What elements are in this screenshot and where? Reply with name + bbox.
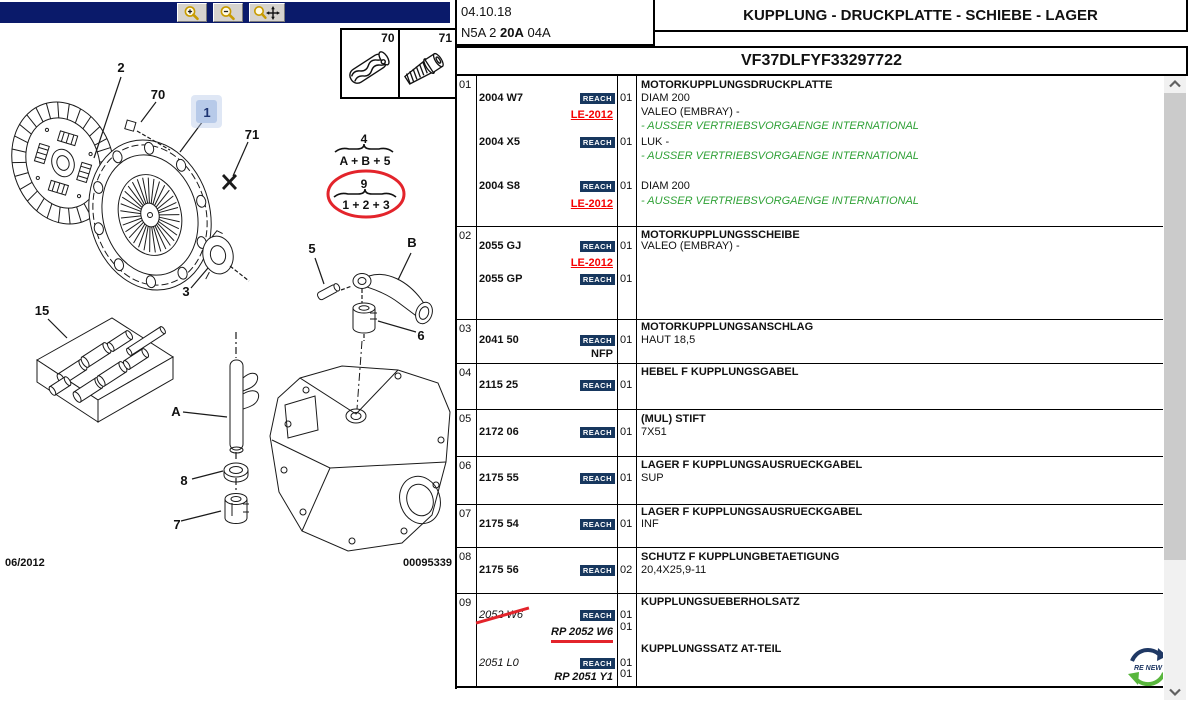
quantity-value: 01 (620, 622, 632, 633)
zoom-out-button[interactable] (213, 3, 243, 22)
quantity-value: 01 (620, 427, 632, 438)
ref-cell: 06 (457, 457, 477, 504)
table-row: 082175 56REACH02SCHUTZ F KUPPLUNGBETAETI… (457, 548, 1163, 594)
quantity-value: 01 (620, 241, 632, 252)
reach-badge[interactable]: REACH (580, 181, 615, 192)
part-number: 2004 S8 (479, 181, 520, 192)
part-cell: 2115 25REACH (477, 364, 618, 409)
description-line: VALEO (EMBRAY) - (641, 241, 740, 252)
parts-diagram: 2707135B615A8714A + B + 591 + 2 + 3 (0, 0, 457, 700)
hardware-inset: 70 71 (340, 28, 457, 99)
pin-icon (342, 38, 398, 94)
table-row: 022055 GJREACHLE-20122055 GPREACH0101MOT… (457, 227, 1163, 320)
description-cell: MOTORKUPPLUNGSANSCHLAGHAUT 18,5 (637, 320, 1163, 363)
table-row: 042115 25REACH01HEBEL F KUPPLUNGSGABEL (457, 364, 1163, 410)
description-header: MOTORKUPPLUNGSANSCHLAG (641, 322, 813, 333)
header-code-suffix: 04A (524, 25, 551, 40)
table-row: 032041 50REACHNFP01MOTORKUPPLUNGSANSCHLA… (457, 320, 1163, 364)
description-header: MOTORKUPPLUNGSDRUCKPLATTE (641, 80, 832, 91)
reach-badge[interactable]: REACH (580, 93, 615, 104)
quantity-value: 01 (620, 669, 632, 680)
part-number[interactable]: LE-2012 (571, 110, 613, 121)
screw-71[interactable] (223, 175, 236, 189)
callout-1-selected[interactable]: 1 (203, 105, 210, 120)
quantity-value: 02 (620, 565, 632, 576)
description-cell: HEBEL F KUPPLUNGSGABEL (637, 364, 1163, 409)
row-ref: 09 (459, 597, 471, 609)
sleeve-kit-box[interactable] (37, 318, 173, 422)
quantity-value: 01 (620, 181, 632, 192)
part-number: 2041 50 (479, 335, 519, 346)
formula-2-number: 9 (361, 177, 368, 191)
release-lever[interactable] (353, 274, 435, 327)
zoom-in-button[interactable] (177, 3, 207, 22)
vin-number: VF37DLFYF33297722 (457, 46, 1188, 76)
description-line: VALEO (EMBRAY) - (641, 107, 740, 118)
reach-badge[interactable]: REACH (580, 610, 615, 621)
magnifier-minus-icon (219, 5, 237, 21)
row-ref: 05 (459, 413, 471, 425)
header-code-prefix: N5A 2 (461, 25, 500, 40)
part-number: 2172 06 (479, 427, 519, 438)
diagram-number: 00095339 (330, 557, 452, 569)
inset-cell-71: 71 (400, 30, 456, 97)
magnifier-plus-icon (183, 5, 201, 21)
header-code-bold: 20A (500, 25, 524, 40)
part-number: RP 2052 W6 (551, 627, 613, 643)
part-cell: 2052 W6REACHRP 2052 W62051 L0REACHRP 205… (477, 594, 618, 688)
row-ref: 08 (459, 551, 471, 563)
reach-badge[interactable]: REACH (580, 241, 615, 252)
ref-cell: 04 (457, 364, 477, 409)
part-cell: 2172 06REACH (477, 410, 618, 456)
description-cell: KUPPLUNGSUEBERHOLSATZKUPPLUNGSSATZ AT-TE… (637, 594, 1163, 688)
ref-cell: 08 (457, 548, 477, 593)
callout-8[interactable]: 8 (180, 473, 187, 488)
table-row: 052172 06REACH01(MUL) STIFT7X51 (457, 410, 1163, 457)
description-header: SCHUTZ F KUPPLUNGBETAETIGUNG (641, 552, 839, 563)
quantity-value: 01 (620, 610, 632, 621)
part-cell: 2004 W7REACHLE-20122004 X5REACH2004 S8RE… (477, 76, 618, 226)
quantity-value: 01 (620, 473, 632, 484)
scroll-down-arrow[interactable] (1164, 683, 1186, 700)
description-line: - AUSSER VERTRIEBSVORGAENGE INTERNATIONA… (641, 121, 919, 132)
quantity-value: 01 (620, 335, 632, 346)
part-number: 2004 X5 (479, 137, 520, 148)
gearbox-housing (270, 341, 450, 551)
description-header: (MUL) STIFT (641, 414, 706, 425)
recycle-arrows-icon: RE NEW (1125, 644, 1163, 688)
header-info: 04.10.18 N5A 2 20A 04A (457, 0, 655, 46)
scroll-up-arrow[interactable] (1164, 76, 1186, 93)
callout-6[interactable]: 6 (417, 328, 424, 343)
table-row: 072175 54REACH01LAGER F KUPPLUNGSAUSRUEC… (457, 505, 1163, 548)
description-cell: LAGER F KUPPLUNGSAUSRUECKGABELSUP (637, 457, 1163, 504)
reach-badge[interactable]: REACH (580, 565, 615, 576)
part-number: 2055 GJ (479, 241, 521, 252)
row-ref: 07 (459, 508, 471, 520)
parts-table: RE NEW 012004 W7REACHLE-20122004 X5REACH… (457, 76, 1163, 688)
diagram-date: 06/2012 (5, 557, 45, 569)
pin-70[interactable] (125, 120, 136, 131)
qty-cell: 01010101 (618, 594, 637, 688)
description-line: - AUSSER VERTRIEBSVORGAENGE INTERNATIONA… (641, 151, 919, 162)
formula-1-number: 4 (361, 132, 368, 146)
part-cell: 2055 GJREACHLE-20122055 GPREACH (477, 227, 618, 319)
row-ref: 02 (459, 230, 471, 242)
page-title: KUPPLUNG - DRUCKPLATTE - SCHIEBE - LAGER (655, 0, 1188, 32)
reach-badge[interactable]: REACH (580, 427, 615, 438)
qty-cell: 01 (618, 320, 637, 363)
description-line: 7X51 (641, 427, 667, 438)
bolt-icon (400, 38, 456, 94)
diagram-toolbar (0, 2, 450, 23)
diagram-pane: 2707135B615A8714A + B + 591 + 2 + 3 (0, 0, 457, 700)
part-cell: 2175 54REACH (477, 505, 618, 547)
part-number[interactable]: LE-2012 (571, 199, 613, 210)
inset-cell-70: 70 (342, 30, 400, 97)
release-shaft[interactable] (230, 360, 259, 453)
qty-cell: 01 (618, 457, 637, 504)
quantity-value: 01 (620, 93, 632, 104)
row-ref: 04 (459, 367, 471, 379)
part-number: 2004 W7 (479, 93, 523, 104)
reach-badge[interactable]: REACH (580, 335, 615, 346)
ref-cell: 02 (457, 227, 477, 319)
header-code: N5A 2 20A 04A (461, 25, 551, 40)
reach-badge[interactable]: REACH (580, 380, 615, 391)
chevron-down-icon (1164, 683, 1186, 700)
description-line: HAUT 18,5 (641, 335, 695, 346)
qty-cell: 0101 (618, 227, 637, 319)
description-line: LUK - (641, 137, 669, 148)
reach-badge[interactable]: REACH (580, 658, 615, 669)
part-cell: 2175 56REACH (477, 548, 618, 593)
magnifier-move-icon (253, 5, 281, 21)
callout-7[interactable]: 7 (173, 517, 180, 532)
row-ref: 06 (459, 460, 471, 472)
callout-15[interactable]: 15 (35, 303, 49, 318)
qty-cell: 010101 (618, 76, 637, 226)
description-cell: SCHUTZ F KUPPLUNGBETAETIGUNG20,4X25,9-11 (637, 548, 1163, 593)
description-line: INF (641, 519, 659, 530)
qty-cell: 01 (618, 505, 637, 547)
callout-71[interactable]: 71 (245, 127, 259, 142)
description-line: DIAM 200 (641, 181, 690, 192)
chevron-up-icon (1164, 76, 1186, 93)
callout-3[interactable]: 3 (182, 284, 189, 299)
bushing-7[interactable] (225, 494, 249, 524)
table-row: 012004 W7REACHLE-20122004 X5REACH2004 S8… (457, 76, 1163, 227)
callout-2[interactable]: 2 (117, 60, 124, 75)
ref-cell: 07 (457, 505, 477, 547)
zoom-pan-button[interactable] (249, 3, 285, 22)
part-cell: 2175 55REACH (477, 457, 618, 504)
row-ref: 03 (459, 323, 471, 335)
part-number: 2055 GP (479, 274, 522, 285)
scrollbar-thumb[interactable] (1164, 93, 1186, 560)
header-date: 04.10.18 (461, 4, 512, 19)
description-cell: MOTORKUPPLUNGSSCHEIBEVALEO (EMBRAY) - (637, 227, 1163, 319)
qty-cell: 01 (618, 364, 637, 409)
part-number: 2175 54 (479, 519, 519, 530)
callout-70[interactable]: 70 (151, 87, 165, 102)
part-number: 2115 25 (479, 380, 518, 391)
part-number: NFP (591, 349, 613, 360)
formula-1-expression: A + B + 5 (340, 154, 391, 168)
description-header: KUPPLUNGSUEBERHOLSATZ (641, 597, 800, 608)
part-number[interactable]: LE-2012 (571, 258, 613, 269)
description-header: KUPPLUNGSSATZ AT-TEIL (641, 644, 781, 655)
quantity-value: 01 (620, 519, 632, 530)
description-cell: LAGER F KUPPLUNGSAUSRUECKGABELINF (637, 505, 1163, 547)
description-line: - AUSSER VERTRIEBSVORGAENGE INTERNATIONA… (641, 196, 919, 207)
description-cell: MOTORKUPPLUNGSDRUCKPLATTEDIAM 200VALEO (… (637, 76, 1163, 226)
part-number: 2052 W6 (479, 610, 523, 621)
description-line: 20,4X25,9-11 (641, 565, 706, 576)
description-header: LAGER F KUPPLUNGSAUSRUECKGABEL (641, 460, 862, 471)
quantity-value: 01 (620, 380, 632, 391)
qty-cell: 02 (618, 548, 637, 593)
ref-cell: 09 (457, 594, 477, 688)
formula-2-expression: 1 + 2 + 3 (342, 198, 390, 212)
pivot-6[interactable] (353, 303, 377, 333)
description-header: HEBEL F KUPPLUNGSGABEL (641, 367, 798, 378)
quantity-value: 01 (620, 137, 632, 148)
qty-cell: 01 (618, 410, 637, 456)
part-cell: 2041 50REACHNFP (477, 320, 618, 363)
description-header: LAGER F KUPPLUNGSAUSRUECKGABEL (641, 507, 862, 518)
renew-logo: RE NEW (1125, 644, 1163, 688)
table-row: 062175 55REACH01LAGER F KUPPLUNGSAUSRUEC… (457, 457, 1163, 505)
ref-cell: 01 (457, 76, 477, 226)
reach-badge[interactable]: REACH (580, 473, 615, 484)
ref-cell: 05 (457, 410, 477, 456)
ref-cell: 03 (457, 320, 477, 363)
quantity-value: 01 (620, 274, 632, 285)
reach-badge[interactable]: REACH (580, 137, 615, 148)
callout-B[interactable]: B (407, 235, 416, 250)
table-scrollbar[interactable] (1164, 76, 1186, 700)
callout-5[interactable]: 5 (308, 241, 315, 256)
part-number: RP 2051 Y1 (554, 672, 613, 683)
reach-badge[interactable]: REACH (580, 519, 615, 530)
part-number: 2051 L0 (479, 658, 519, 669)
part-number: 2175 55 (479, 473, 519, 484)
renew-logo-text: RE NEW (1134, 665, 1163, 672)
pin-5[interactable] (316, 283, 341, 301)
table-row: 092052 W6REACHRP 2052 W62051 L0REACHRP 2… (457, 594, 1163, 688)
description-line: SUP (641, 473, 664, 484)
reach-badge[interactable]: REACH (580, 274, 615, 285)
row-ref: 01 (459, 79, 471, 91)
description-cell: (MUL) STIFT7X51 (637, 410, 1163, 456)
description-line: DIAM 200 (641, 93, 690, 104)
part-number: 2175 56 (479, 565, 519, 576)
callout-A[interactable]: A (171, 404, 181, 419)
